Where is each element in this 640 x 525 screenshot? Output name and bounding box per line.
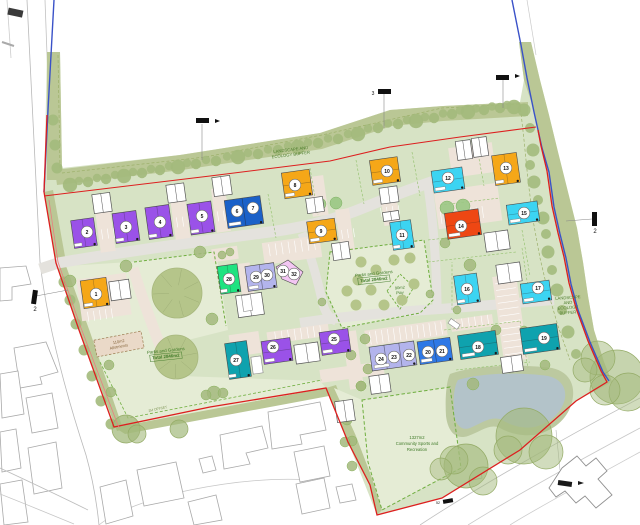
svg-text:30: 30 — [264, 273, 270, 279]
svg-text:32: 32 — [291, 272, 297, 278]
svg-text:12: 12 — [445, 176, 451, 182]
svg-text:14: 14 — [458, 224, 464, 230]
svg-text:18: 18 — [475, 345, 481, 351]
svg-text:9: 9 — [320, 229, 323, 235]
svg-text:13: 13 — [503, 166, 509, 172]
svg-text:Recreation: Recreation — [407, 447, 428, 452]
svg-text:6: 6 — [236, 209, 239, 215]
svg-text:1: 1 — [95, 292, 98, 298]
svg-text:8: 8 — [294, 183, 297, 189]
svg-text:3: 3 — [125, 225, 128, 231]
svg-text:22: 22 — [406, 353, 412, 359]
svg-text:4: 4 — [159, 220, 162, 226]
svg-text:27: 27 — [233, 358, 239, 364]
svg-text:52: 52 — [436, 501, 440, 505]
svg-text:19: 19 — [541, 336, 547, 342]
svg-text:21: 21 — [439, 349, 445, 355]
svg-text:26: 26 — [270, 345, 276, 351]
svg-text:7: 7 — [252, 206, 255, 212]
svg-text:16: 16 — [464, 287, 470, 293]
svg-text:29: 29 — [253, 275, 259, 281]
svg-text:24: 24 — [378, 357, 384, 363]
svg-text:25: 25 — [331, 337, 337, 343]
svg-text:11: 11 — [399, 233, 405, 239]
svg-text:3: 3 — [372, 91, 375, 97]
svg-text:23: 23 — [391, 355, 397, 361]
svg-text:15: 15 — [521, 211, 527, 217]
svg-text:31: 31 — [280, 269, 286, 275]
svg-text:28: 28 — [226, 277, 232, 283]
svg-text:1327m2: 1327m2 — [409, 435, 425, 440]
svg-text:Community Sports and: Community Sports and — [396, 441, 439, 446]
svg-text:Play: Play — [396, 290, 404, 296]
svg-text:10: 10 — [384, 169, 390, 175]
svg-text:2: 2 — [86, 230, 89, 236]
svg-text:17: 17 — [535, 286, 541, 292]
svg-text:20: 20 — [425, 350, 431, 356]
svg-text:5: 5 — [201, 214, 204, 220]
